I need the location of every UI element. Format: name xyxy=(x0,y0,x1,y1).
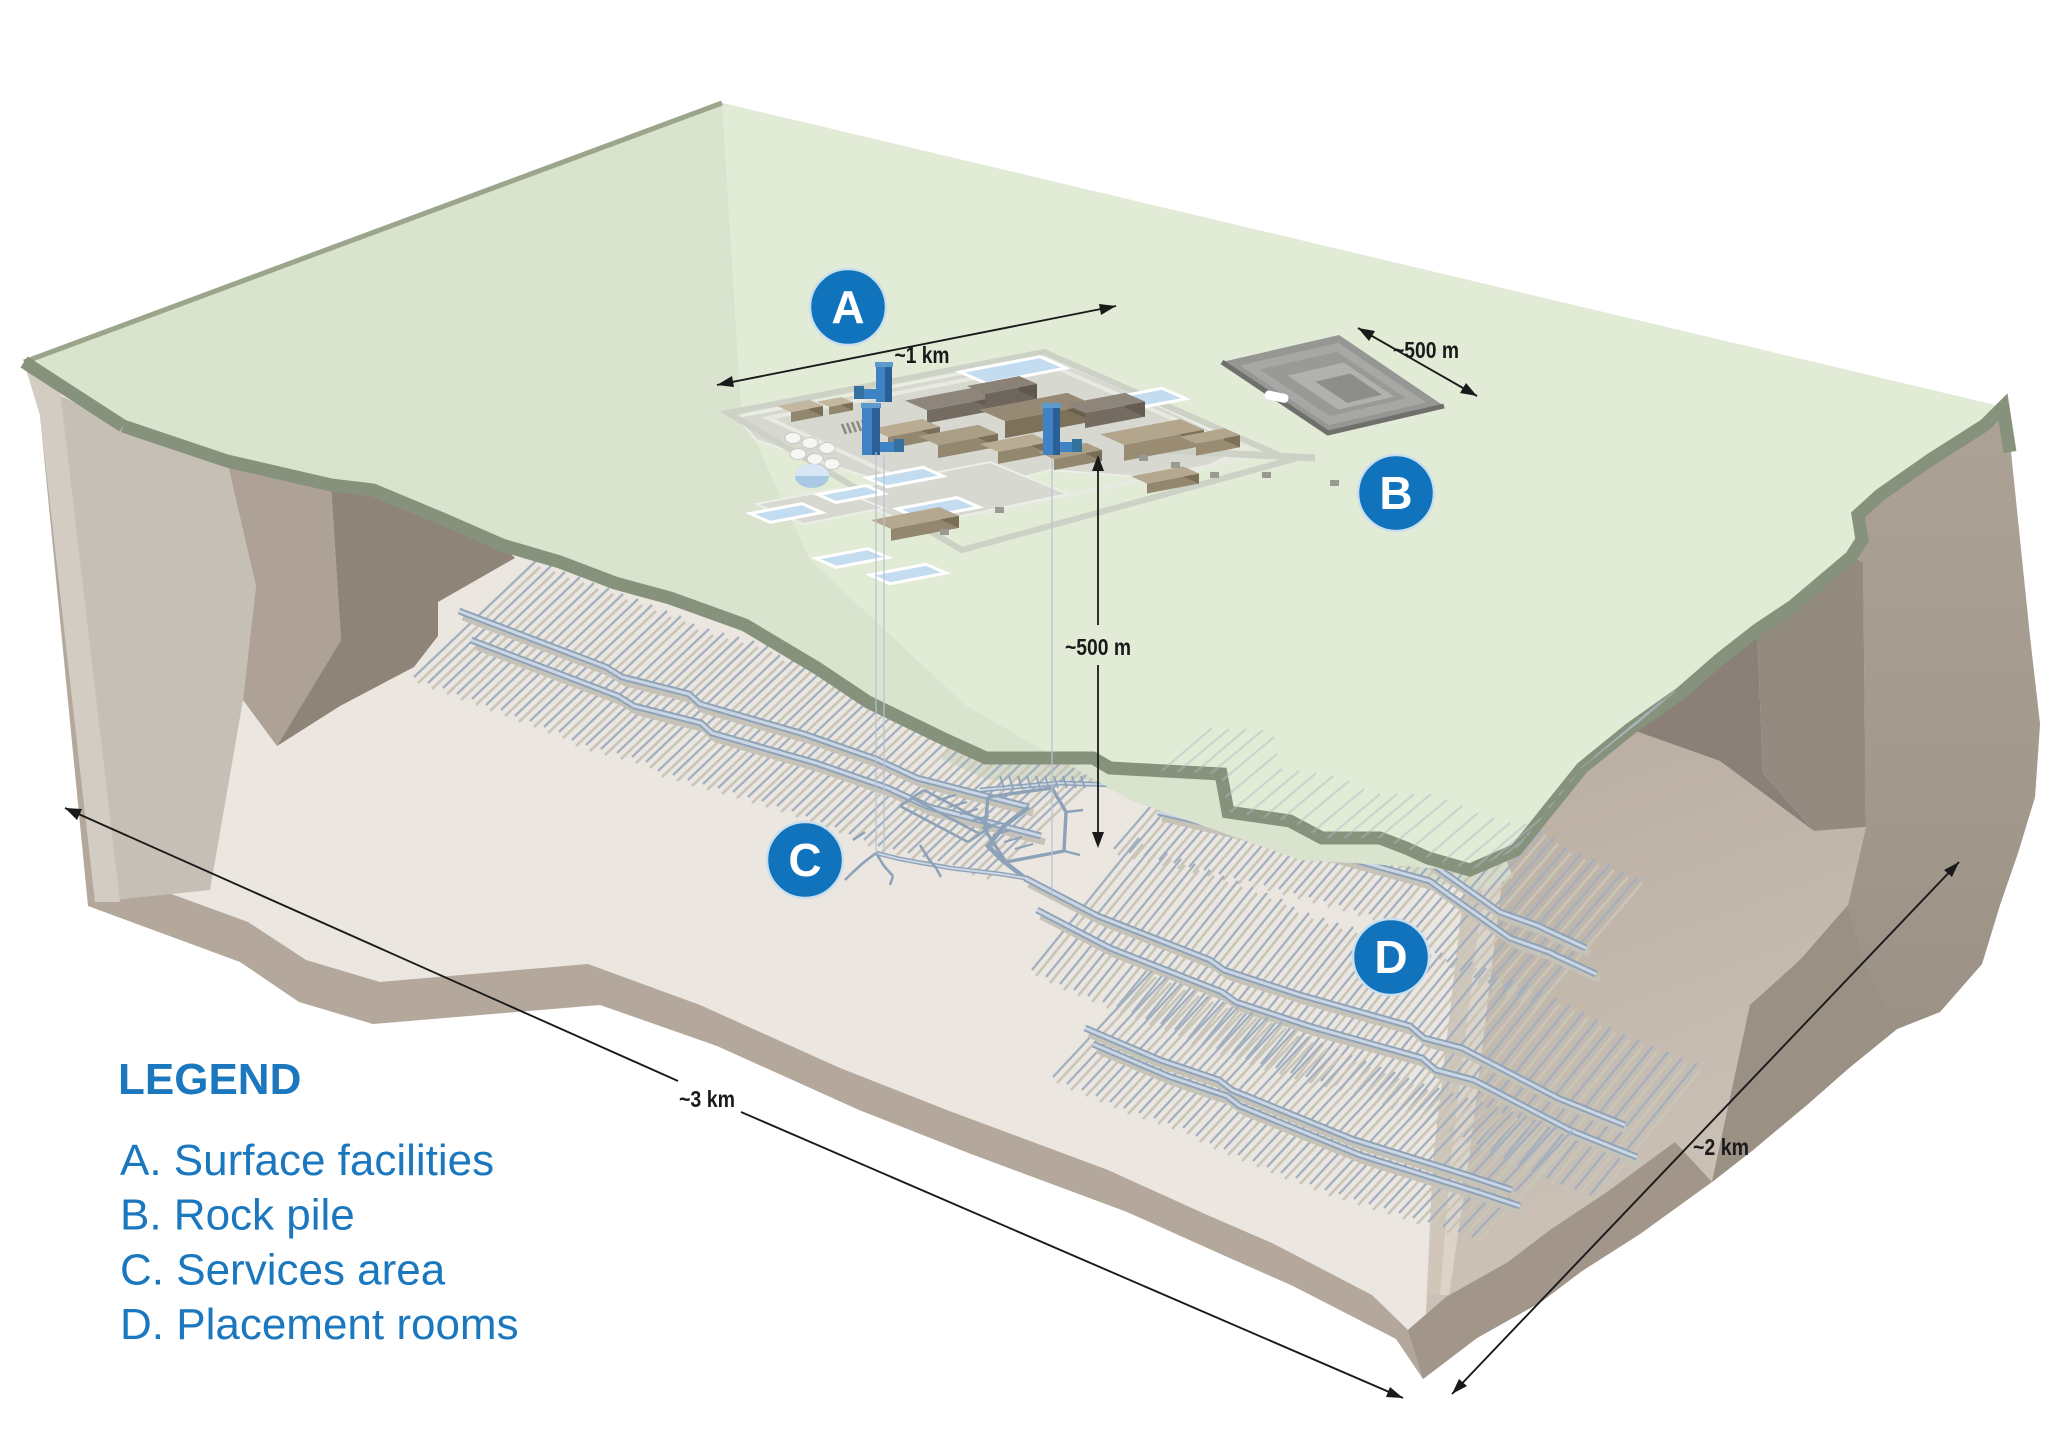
svg-text:~3 km: ~3 km xyxy=(679,1086,735,1112)
svg-text:~500 m: ~500 m xyxy=(1065,634,1131,660)
svg-text:B: B xyxy=(1379,467,1412,519)
svg-text:A. Surface facilities: A. Surface facilities xyxy=(120,1136,494,1185)
svg-text:~1 km: ~1 km xyxy=(895,342,950,368)
svg-text:D: D xyxy=(1374,931,1407,983)
svg-text:~2 km: ~2 km xyxy=(1693,1134,1749,1160)
svg-text:B. Rock pile: B. Rock pile xyxy=(120,1191,355,1240)
svg-text:A: A xyxy=(831,281,864,333)
svg-text:C: C xyxy=(788,834,821,886)
svg-text:D. Placement rooms: D. Placement rooms xyxy=(120,1300,519,1349)
svg-text:~500 m: ~500 m xyxy=(1393,337,1459,363)
svg-text:LEGEND: LEGEND xyxy=(118,1055,301,1104)
svg-text:C. Services area: C. Services area xyxy=(120,1245,446,1294)
